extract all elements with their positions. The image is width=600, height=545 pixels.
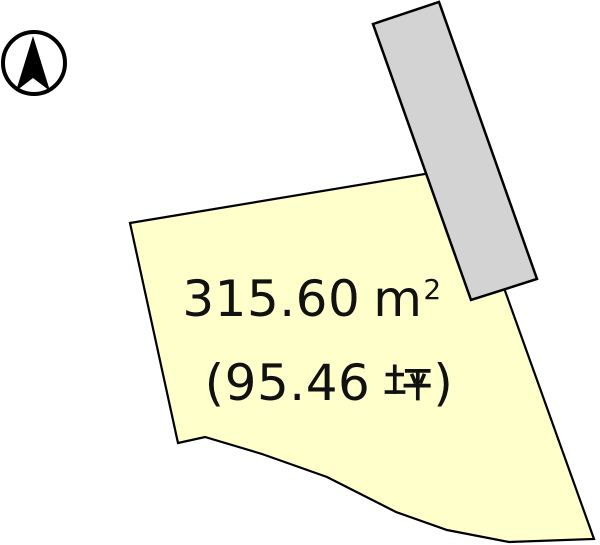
area-m2-value: 315.60 bbox=[182, 270, 360, 328]
tsubo-value: 95.46 bbox=[225, 354, 371, 412]
north-compass bbox=[3, 32, 65, 94]
tsubo-character-icon bbox=[384, 358, 430, 404]
area-label-tsubo: (95.46) bbox=[205, 358, 454, 408]
land-plot-diagram: 315.60m2 (95.46) bbox=[0, 0, 600, 545]
area-label-m2: 315.60m2 bbox=[182, 274, 441, 324]
area-m2-unit: m bbox=[373, 270, 422, 328]
tsubo-close-paren: ) bbox=[433, 354, 453, 412]
tsubo-open-paren: ( bbox=[205, 354, 225, 412]
area-m2-exponent: 2 bbox=[423, 273, 441, 306]
